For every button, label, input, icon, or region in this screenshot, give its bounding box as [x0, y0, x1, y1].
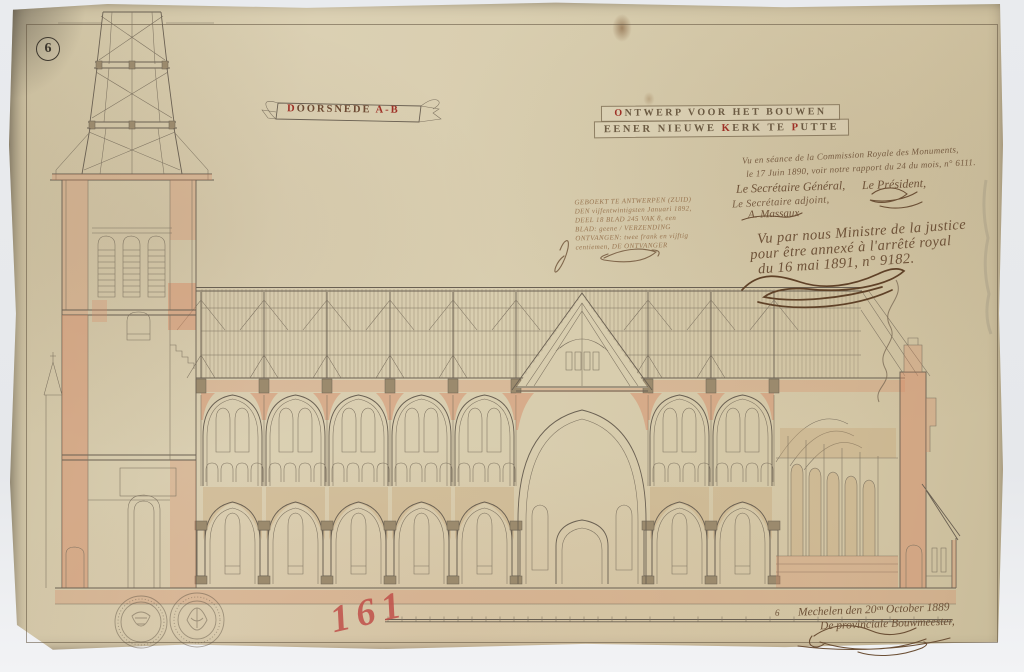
tower-lower-floors — [62, 300, 196, 588]
scanned-architectural-drawing: .ln{stroke:#6a6052;fill:none;stroke-widt… — [0, 0, 1024, 672]
project-title-line2: EENER NIEUWE KERK TE PUTTE — [594, 119, 849, 139]
foundation-band — [55, 588, 956, 604]
secretary-name: A. Massaux — [748, 207, 800, 221]
sheet-number: 6 — [36, 37, 60, 61]
tower-section — [44, 12, 214, 588]
show-through-marks — [984, 180, 991, 334]
choir-apse — [776, 419, 898, 588]
registration-stamp: GEBOEKT TE ANTWERPEN (ZUID) DEN vijfentw… — [574, 195, 692, 252]
crossing-arch — [516, 393, 648, 584]
sacristy-annex — [900, 338, 960, 588]
church-section-drawing: .ln{stroke:#6a6052;fill:none;stroke-widt… — [0, 0, 1024, 672]
tower-side-chapel — [44, 352, 62, 588]
banner-initial: D — [287, 103, 297, 114]
spire-truss — [50, 12, 214, 180]
colophon-prefix: 6 — [775, 608, 780, 618]
round-stamp-right — [170, 593, 224, 647]
president-role: Le Président, — [862, 176, 926, 193]
banner-title: DOORSNEDE A-B — [287, 103, 400, 116]
